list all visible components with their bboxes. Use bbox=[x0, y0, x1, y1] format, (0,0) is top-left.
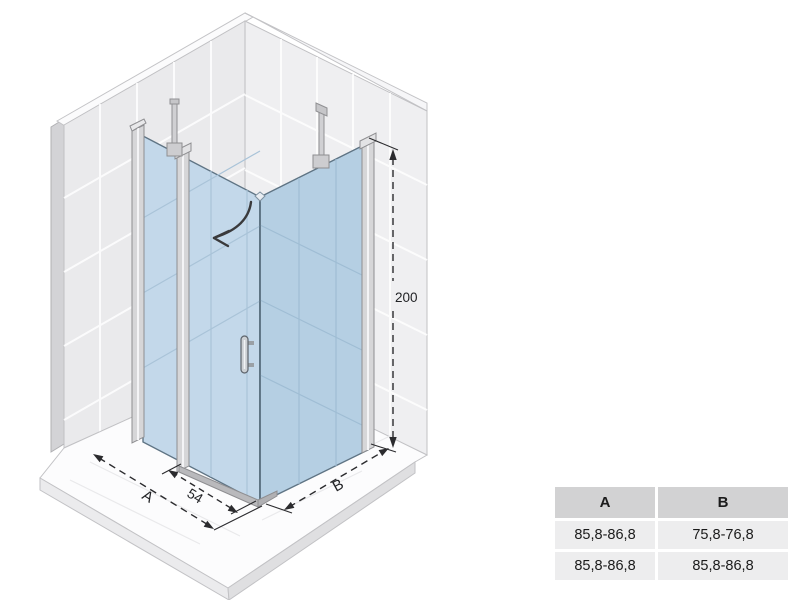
size-table-header-b: B bbox=[658, 487, 788, 518]
support-bar-left-clamp bbox=[167, 143, 182, 156]
support-bar-right-clamp bbox=[313, 155, 329, 168]
left-wall-edge bbox=[51, 119, 64, 452]
glass-panel-left bbox=[143, 136, 260, 503]
door-handle-standoff-top bbox=[248, 341, 254, 345]
support-bar-right bbox=[319, 112, 324, 160]
dimension-200-label: 200 bbox=[395, 290, 418, 305]
shower-enclosure-diagram-page: A 54 B 200 A B 85,8-86,8 75,8-76,8 85,8-… bbox=[0, 0, 800, 600]
size-table-cell-b2: 85,8-86,8 bbox=[658, 552, 788, 580]
support-bar-left-cap bbox=[170, 99, 179, 104]
size-table-cell-b1: 75,8-76,8 bbox=[658, 521, 788, 549]
size-table-cell-a2: 85,8-86,8 bbox=[555, 552, 655, 580]
door-handle-standoff-bottom bbox=[248, 363, 254, 367]
size-table: A B 85,8-86,8 75,8-76,8 85,8-86,8 85,8-8… bbox=[555, 487, 788, 580]
size-table-header-a: A bbox=[555, 487, 655, 518]
size-table-cell-a1: 85,8-86,8 bbox=[555, 521, 655, 549]
glass-panel-right bbox=[260, 143, 368, 503]
support-bar-left bbox=[172, 103, 177, 148]
